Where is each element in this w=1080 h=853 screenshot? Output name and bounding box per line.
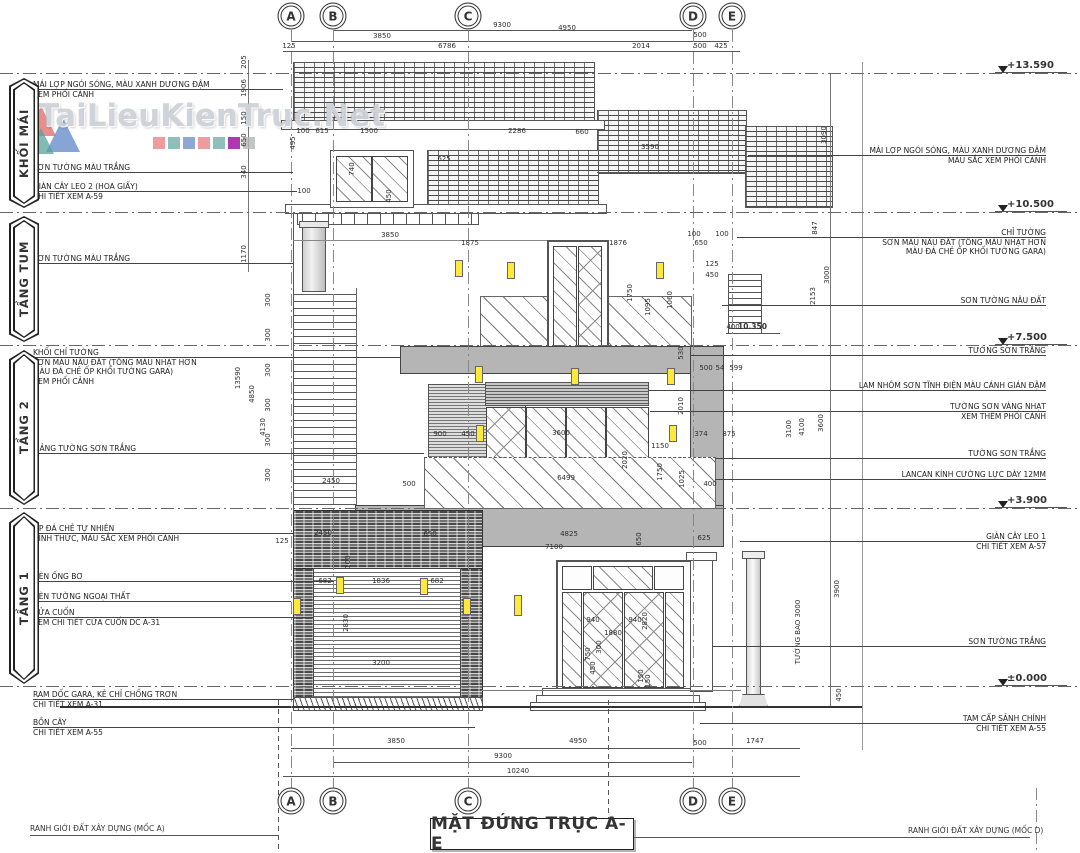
left-annotation: ĐÈN TƯỜNG NGOẠI THẤT <box>33 592 130 602</box>
inner-level-line <box>726 333 780 334</box>
roof-tile-band-lower <box>427 150 599 206</box>
right-annotation: CHỈ TƯỜNGSƠN MÀU NÂU ĐẤT (TÔNG MÀU NHẠT … <box>882 228 1046 257</box>
garage-stone-pier-right <box>459 568 483 708</box>
right-annotation: GIÀN CÂY LEO 1CHI TIẾT XEM A-57 <box>976 532 1046 551</box>
grid-axis-line-E <box>732 30 733 790</box>
leader-line <box>33 533 293 534</box>
entry-transom-left <box>562 566 592 590</box>
wall-light <box>475 366 483 383</box>
annotation-line: CHI TIẾT XEM A-55 <box>963 724 1046 734</box>
watermark-square <box>228 137 240 149</box>
dimension-label: 300 <box>264 293 272 306</box>
hall-floor-line <box>481 690 741 691</box>
dimension-label: 1150 <box>651 442 669 450</box>
aluminum-louver-band <box>485 382 649 406</box>
level-line <box>0 508 1080 509</box>
dimension-label: TƯỜNG BAO 3000 <box>794 600 802 665</box>
dim-line <box>291 748 800 749</box>
dimension-label: 625 <box>697 534 710 542</box>
watermark-square <box>213 137 225 149</box>
dimension-label: 205 <box>240 55 248 68</box>
annotation-line: MÀU SẮC XEM PHỐI CẢNH <box>869 156 1046 166</box>
boundary-line-right <box>1036 788 1037 853</box>
wall-frame-top-bar <box>400 346 724 374</box>
left-annotation: SƠN TƯỜNG MÀU TRẮNG <box>33 163 130 173</box>
leader-line <box>30 835 278 836</box>
boundary-label-right-text: RANH GIỚI ĐẤT XÂY DỰNG (MỐC D) <box>908 826 1043 835</box>
dim-line <box>333 30 692 31</box>
leader-line <box>33 89 283 90</box>
left-annotation: RAM DỐC GARA, KẺ CHỈ CHỐNG TRƠNCHI TIẾT … <box>33 690 177 709</box>
dim-line <box>283 51 740 52</box>
leader-line <box>33 357 400 358</box>
dimension-label: 450 <box>461 430 474 438</box>
dimension-label: 2153 <box>809 287 817 305</box>
roof-edge-line <box>597 172 745 173</box>
grid-bubble-bottom-D: D <box>680 788 707 815</box>
dimension-label: 1060 <box>666 291 674 309</box>
dimension-label: 1876 <box>609 239 627 247</box>
dimension-label: 2820 <box>641 612 649 630</box>
dimension-label: 940 <box>628 616 641 624</box>
ground-line <box>60 706 862 708</box>
leader-line <box>722 305 1046 306</box>
roof-tile-band-right <box>597 110 747 174</box>
dimension-label: 125 <box>282 42 295 50</box>
wall-light <box>669 425 677 442</box>
entry-transom-center <box>593 566 653 590</box>
tum-door-pane-left <box>553 246 577 348</box>
leader-line <box>648 390 1046 391</box>
leader-line <box>33 727 475 728</box>
right-annotation: TƯỜNG SƠN TRẮNG <box>968 449 1046 459</box>
dim-line <box>333 762 692 763</box>
wall-light <box>507 262 515 279</box>
leader-line <box>610 837 1030 838</box>
dimension-label: 13590 <box>234 367 242 389</box>
grid-axis-line-D <box>693 30 694 790</box>
grid-bubble-top-C: C <box>455 3 482 30</box>
leader-line <box>715 479 1046 480</box>
dimension-label: 2010 <box>677 397 685 415</box>
dimension-label: 4950 <box>569 737 587 745</box>
grid-bubble-top-B: B <box>320 3 347 30</box>
leader-line <box>650 411 1046 412</box>
right-annotation: TƯỜNG SƠN VÀNG NHẠTXEM THÊM PHỐI CẢNH <box>950 402 1046 421</box>
left-annotation: MẢNG TƯỜNG SƠN TRẮNG <box>33 444 136 454</box>
annotation-line: XEM PHỐI CẢNH <box>33 377 197 387</box>
dimension-label: 650 <box>240 133 248 146</box>
annotation-line: CHI TIẾT XEM A-55 <box>33 728 103 738</box>
right-annotation: SƠN TƯỜNG NÂU ĐẤT <box>961 296 1046 306</box>
dimension-label: 660 <box>575 128 588 136</box>
dimension-label: 625 <box>437 155 450 163</box>
dimension-label: 100 <box>715 230 728 238</box>
leader-line <box>33 453 424 454</box>
elevation-value: +10.500 <box>1007 199 1054 210</box>
section-tag-label: TẦNG TUM <box>9 216 39 342</box>
left-annotation: CỬA CUỐNXEM CHI TIẾT CỬA CUỐN DC A-31 <box>33 608 160 627</box>
dimension-label: 682 <box>430 577 443 585</box>
dimension-label: 4950 <box>558 24 576 32</box>
annotation-line: CHI TIẾT XEM A-31 <box>33 700 177 710</box>
dimension-label: 100 <box>687 230 700 238</box>
dimension-label: 3600 <box>552 429 570 437</box>
leader-line <box>33 191 297 192</box>
annotation-line: XEM CHI TIẾT CỬA CUỐN DC A-31 <box>33 618 160 628</box>
dimension-label: 1095 <box>644 298 652 316</box>
dimension-label: 7100 <box>545 543 563 551</box>
watermark-square <box>183 137 195 149</box>
section-tag-4: TẦNG 1 <box>9 512 39 684</box>
annotation-line: XEM THÊM PHỐI CẢNH <box>950 412 1046 422</box>
roof-fascia-upper <box>281 120 605 130</box>
leader-line <box>690 355 1046 356</box>
boundary-label-right: RANH GIỚI ĐẤT XÂY DỰNG (MỐC D) <box>908 826 1043 835</box>
right-annotation: TAM CẤP SẢNH CHÍNHCHI TIẾT XEM A-55 <box>963 714 1046 733</box>
boundary-column-cap <box>742 551 765 559</box>
annotation-line: MÀU ĐÁ CHẺ ỐP KHỐI TƯỜNG GARA) <box>33 367 197 377</box>
dimension-label: 1906 <box>240 79 248 97</box>
boundary-label-left: RANH GIỚI ĐẤT XÂY DỰNG (MỐC A) <box>30 824 165 833</box>
elevation-value: +13.590 <box>1007 60 1054 71</box>
dimension-label: 425 <box>714 42 727 50</box>
dimension-label: 374 <box>694 430 707 438</box>
wall-light <box>455 260 463 277</box>
dimension-label: 1750 <box>656 463 664 481</box>
dimension-label: 2020 <box>621 451 629 469</box>
dimension-label: 3600 <box>817 414 825 432</box>
roof-tile-band-upper-left <box>293 62 595 122</box>
dimension-label: 500 <box>693 739 706 747</box>
floor2-window-pane-3 <box>566 407 606 459</box>
dimension-label: 530 <box>677 346 685 359</box>
drawing-title-text: MẶT ĐỨNG TRỤC A-E <box>431 814 633 853</box>
leader-line <box>33 699 293 700</box>
garage-stone-pier-left <box>293 568 315 708</box>
section-tag-1: KHỐI MÁI <box>9 78 39 208</box>
dimension-label: 3090 <box>820 126 828 144</box>
dimension-label: 300 <box>264 363 272 376</box>
annotation-line: CHI TIẾT XEM A-57 <box>976 542 1046 552</box>
level-line <box>0 212 1080 213</box>
left-annotation: SƠN TƯỜNG MÀU TRẮNG <box>33 254 130 264</box>
wall-light <box>667 368 675 385</box>
section-tag-label: TẦNG 2 <box>9 350 39 505</box>
dimension-label: 400 <box>703 480 716 488</box>
entry-door-side-left <box>562 592 582 688</box>
dimension-label: 150 <box>644 674 652 687</box>
right-annotation: LAM NHÔM SƠN TĨNH ĐIỆN MÀU CÁNH GIÁN ĐẬM <box>859 381 1046 391</box>
right-annotation: MÁI LỢP NGÓI SÓNG, MÀU XANH DƯƠNG ĐẬMMÀU… <box>869 146 1046 165</box>
dimension-label: 1750 <box>626 284 634 302</box>
level-line <box>0 686 1080 687</box>
dimension-label: 9300 <box>493 21 511 29</box>
dimension-label: 500 <box>699 364 712 372</box>
dimension-label: 900 <box>433 430 446 438</box>
dimension-label: 3850 <box>373 32 391 40</box>
dimension-label: 450 <box>589 661 597 674</box>
dimension-label: 650 <box>423 530 436 538</box>
entry-pilaster-cap <box>686 552 717 561</box>
cylinder-light <box>514 595 522 616</box>
dimension-label: 6499 <box>557 474 575 482</box>
dimension-label: 599 <box>729 364 742 372</box>
elevation-value: +7.500 <box>1007 332 1047 343</box>
dimension-label: 300 <box>595 640 603 653</box>
dimension-label: 875 <box>722 430 735 438</box>
boundary-line-moc-a <box>278 700 279 850</box>
dimension-label: 3590 <box>641 143 659 151</box>
dim-line <box>293 240 547 241</box>
dimension-label: 750 <box>584 647 592 660</box>
entry-door-side-right <box>665 592 684 688</box>
dimension-label: 125 <box>705 260 718 268</box>
dimension-label: 100 <box>344 555 352 568</box>
elevation-drawing-canvas: TaiLieuKienTruc.Net MẶT ĐỨNG TRỤC A-E RA… <box>0 0 1080 853</box>
chimney <box>302 226 326 292</box>
dimension-label: 2286 <box>508 127 526 135</box>
watermark-square <box>153 137 165 149</box>
annotation-line: MÀU ĐÁ CHẺ ỐP KHỐI TƯỜNG GARA) <box>882 247 1046 257</box>
dimension-label: 500 <box>693 31 706 39</box>
dimension-label: 1025 <box>678 470 686 488</box>
dimension-label: 4100 <box>798 418 806 436</box>
wall-light <box>336 577 344 594</box>
level-line <box>0 73 1080 74</box>
dimension-label: 54 <box>716 364 725 372</box>
boundary-column <box>746 556 761 698</box>
boundary-label-left-text: RANH GIỚI ĐẤT XÂY DỰNG (MỐC A) <box>30 824 165 833</box>
wall-light <box>463 598 471 615</box>
dimension-label: 300 <box>264 398 272 411</box>
dimension-label: 300 <box>264 328 272 341</box>
grid-bubble-top-D: D <box>680 3 707 30</box>
dimension-label: 1170 <box>240 245 248 263</box>
wall-light <box>571 368 579 385</box>
grid-axis-line-B <box>333 30 334 790</box>
chimney-cap <box>299 221 329 228</box>
grid-axis-line-C <box>468 30 469 790</box>
grid-bubble-top-A: A <box>278 3 305 30</box>
dimension-label: 450 <box>705 271 718 279</box>
dimension-label: 1500 <box>360 127 378 135</box>
section-tag-label: KHỐI MÁI <box>9 78 39 208</box>
leader-line <box>712 646 1046 647</box>
left-annotation: BỒN CÂYCHI TIẾT XEM A-55 <box>33 718 103 737</box>
left-annotation: GIÀN CÂY LEO 2 (HOA GIẤY)CHI TIẾT XEM A-… <box>33 182 138 201</box>
dimension-label: 450 <box>385 189 393 202</box>
dimension-label: 125 <box>275 537 288 545</box>
left-annotation: ĐÈN ỐNG BƠ <box>33 572 83 582</box>
dimension-label: 3850 <box>381 231 399 239</box>
watermark-triangle-blue <box>46 118 80 152</box>
dimension-label: 4850 <box>248 385 256 403</box>
wall-light <box>476 425 484 442</box>
leader-line <box>33 581 334 582</box>
leader-line <box>748 155 1046 156</box>
dimension-label: 847 <box>811 221 819 234</box>
left-dim-chain-line <box>248 60 249 272</box>
dimension-label: 3900 <box>833 580 841 598</box>
dim-line <box>291 41 729 42</box>
elevation-value: +3.900 <box>1007 495 1047 506</box>
annotation-line: XEM PHỐI CẢNH <box>33 90 210 100</box>
leader-line <box>33 172 293 173</box>
wall-edge-left <box>293 212 294 512</box>
section-tag-3: TẦNG 2 <box>9 350 39 505</box>
dimension-label: 740 <box>348 162 356 175</box>
leader-line <box>700 723 1046 724</box>
dimension-label: 3100 <box>785 420 793 438</box>
leader-line <box>737 237 1046 238</box>
dimension-label: 3200 <box>372 659 390 667</box>
right-annotation: TƯỜNG SƠN TRẮNG <box>968 346 1046 356</box>
garage-ramp <box>293 697 483 711</box>
elevation-value: ±0.000 <box>1007 673 1047 684</box>
leader-line <box>33 617 313 618</box>
dimension-label: 500 <box>693 42 706 50</box>
section-tag-label: TẦNG 1 <box>9 512 39 684</box>
dimension-label: 500 <box>402 480 415 488</box>
dimension-label: 650 <box>694 239 707 247</box>
dimension-label: 10240 <box>507 767 529 775</box>
dimension-label: 650 <box>635 532 643 545</box>
floor2-window-pane-1 <box>486 407 526 459</box>
right-annotation: SƠN TƯỜNG TRẮNG <box>968 637 1046 647</box>
grid-bubble-bottom-C: C <box>455 788 482 815</box>
dimension-label: 495 <box>289 136 297 149</box>
watermark-square <box>198 137 210 149</box>
dimension-label: 1836 <box>372 577 390 585</box>
dimension-label: 940 <box>586 616 599 624</box>
drawing-title: MẶT ĐỨNG TRỤC A-E <box>430 818 634 850</box>
dimension-label: 2450 <box>314 529 332 537</box>
annotation-line: CHI TIẾT XEM A-59 <box>33 192 138 202</box>
wall-light <box>656 262 664 279</box>
dimension-label: 3000 <box>823 266 831 284</box>
dimension-label: 1880 <box>604 629 622 637</box>
leader-line <box>33 601 291 602</box>
right-annotation: LANCAN KÍNH CƯỜNG LỰC DÀY 12MM <box>902 470 1046 480</box>
dimension-label: 1747 <box>746 737 764 745</box>
garage-stone-band-top <box>293 510 483 570</box>
dimension-label: 4825 <box>560 530 578 538</box>
leader-line <box>740 541 1046 542</box>
level-line <box>0 345 1080 346</box>
dimension-label: 2450 <box>322 477 340 485</box>
dimension-label: 2830 <box>342 614 350 632</box>
dim-line <box>283 776 800 777</box>
dimension-label: 100 <box>297 187 310 195</box>
grid-bubble-bottom-E: E <box>719 788 746 815</box>
left-annotation: ỐP ĐÁ CHẺ TỰ NHIÊNHÌNH THỨC, MÀU SẮC XEM… <box>33 524 179 543</box>
wall-light <box>293 598 301 615</box>
dimension-label: 2014 <box>632 42 650 50</box>
dimension-label: 1875 <box>461 239 479 247</box>
entry-transom-right <box>654 566 684 590</box>
left-annotation: KHỐI CHỈ TƯỜNGSƠN MÀU NÂU ĐẤT (TÔNG MÀU … <box>33 348 197 386</box>
grid-bubble-bottom-B: B <box>320 788 347 815</box>
watermark-square <box>168 137 180 149</box>
dimension-label: 150 <box>240 111 248 124</box>
dimension-label: 300 <box>264 468 272 481</box>
dimension-label: 300 <box>264 433 272 446</box>
dimension-label: 100 <box>296 127 309 135</box>
annotation-line: SƠN MÀU NÂU ĐẤT (TÔNG MÀU NHẠT HƠN <box>33 358 197 368</box>
dimension-label: 615 <box>315 127 328 135</box>
leader-line <box>715 458 1046 459</box>
left-annotation: MÁI LỢP NGÓI SÓNG, MÀU XANH DƯƠNG ĐẬMXEM… <box>33 80 210 99</box>
annotation-line: SƠN MÀU NÂU ĐẤT (TÔNG MÀU NHẠT HƠN <box>882 238 1046 248</box>
leader-line <box>33 263 293 264</box>
dimension-label: 9300 <box>494 752 512 760</box>
tum-door-pane-right <box>578 246 602 348</box>
dimension-label: 3850 <box>387 737 405 745</box>
elevation-value-inner: 10.350 <box>738 322 767 331</box>
wall-light <box>420 578 428 595</box>
grid-bubble-bottom-A: A <box>278 788 305 815</box>
section-tag-2: TẦNG TUM <box>9 216 39 342</box>
grid-bubble-top-E: E <box>719 3 746 30</box>
dimension-label: 450 <box>835 688 843 701</box>
dimension-label: 6786 <box>438 42 456 50</box>
annotation-line: HÌNH THỨC, MÀU SẮC XEM PHỐI CẢNH <box>33 534 179 544</box>
